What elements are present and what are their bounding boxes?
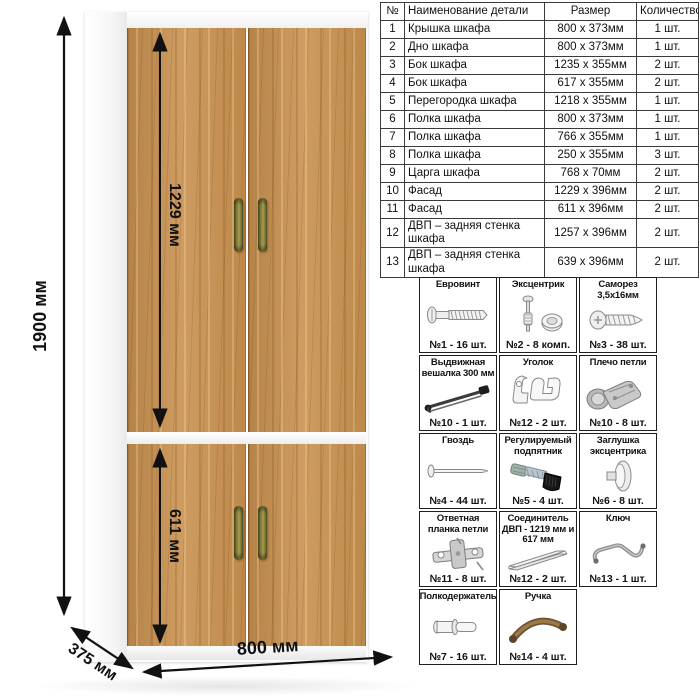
col-header-qty: Количество	[637, 3, 699, 21]
hardware-cell-ugolok: Уголок №12 - 2 шт.	[499, 355, 577, 431]
hardware-count: №4 - 44 шт.	[429, 495, 486, 507]
part-num: 12	[381, 219, 405, 248]
part-num: 4	[381, 75, 405, 93]
parts-table-header-row: № Наименование детали Размер Количество	[381, 3, 699, 21]
part-num: 8	[381, 147, 405, 165]
col-header-size: Размер	[545, 3, 637, 21]
hardware-count: №11 - 8 шт.	[430, 573, 487, 585]
hardware-title: Ручка	[525, 592, 551, 603]
part-qty: 3 шт.	[637, 147, 699, 165]
hardware-title: Плечо петли	[590, 358, 647, 369]
part-num: 5	[381, 93, 405, 111]
part-name: Перегородка шкафа	[405, 93, 545, 111]
part-qty: 2 шт.	[637, 165, 699, 183]
table-row: 4Бок шкафа617 x 355мм2 шт.	[381, 75, 699, 93]
dim-label-depth: 375 мм	[65, 640, 120, 684]
hardware-count: №14 - 4 шт.	[509, 651, 566, 663]
hardware-title: Полкодержатель	[420, 592, 497, 603]
part-num: 10	[381, 183, 405, 201]
hardware-cell-handle: Ручка №14 - 4 шт.	[499, 589, 577, 665]
hardware-cell-empty	[579, 589, 657, 665]
handle-icon	[501, 603, 575, 651]
hardware-title: Ключ	[606, 514, 630, 525]
hardware-title: Ответная планка петли	[421, 514, 495, 535]
hardware-title: Эксцентрик	[512, 280, 565, 291]
table-row: 6Полка шкафа800 x 373мм1 шт.	[381, 111, 699, 129]
part-name: Бок шкафа	[405, 57, 545, 75]
part-size: 617 x 355мм	[545, 75, 637, 93]
hardware-title: Евровинт	[436, 280, 480, 291]
part-num: 11	[381, 201, 405, 219]
hardware-title: Заглушка эксцентрика	[581, 436, 655, 457]
part-name: Фасад	[405, 183, 545, 201]
part-size: 1235 x 355мм	[545, 57, 637, 75]
part-qty: 2 шт.	[637, 183, 699, 201]
hardware-cell-shelf-pin: Полкодержатель №7 - 16 шт.	[419, 589, 497, 665]
col-header-name: Наименование детали	[405, 3, 545, 21]
hardware-cell-eurovint: Евровинт №1 - 16 шт.	[419, 277, 497, 353]
part-size: 611 x 396мм	[545, 201, 637, 219]
dim-label-top-door: 1229 мм	[166, 183, 183, 247]
part-name: Дно шкафа	[405, 39, 545, 57]
hardware-cell-nail: Гвоздь №4 - 44 шт.	[419, 433, 497, 509]
part-qty: 2 шт.	[637, 57, 699, 75]
part-qty: 1 шт.	[637, 21, 699, 39]
corner-bracket-icon	[501, 369, 575, 417]
hardware-grid: Евровинт №1 - 16 шт. Эксцентрик	[419, 277, 657, 665]
table-row: 13ДВП – задняя стенка шкафа639 x 396мм2 …	[381, 248, 699, 277]
part-name: ДВП – задняя стенка шкафа	[405, 219, 545, 248]
part-name: Крышка шкафа	[405, 21, 545, 39]
dim-label-bottom-door: 611 мм	[166, 509, 183, 563]
hardware-cell-key: Ключ №13 - 1 шт.	[579, 511, 657, 587]
part-num: 7	[381, 129, 405, 147]
hardware-count: №3 - 38 шт.	[589, 339, 646, 351]
hardware-cell-hdf-connector: Соединитель ДВП - 1219 мм и 617 мм №12 -…	[499, 511, 577, 587]
part-qty: 1 шт.	[637, 129, 699, 147]
dimension-overlay: 1900 мм 1229 мм 611 мм 800 мм 375 мм	[0, 0, 430, 700]
part-size: 800 x 373мм	[545, 21, 637, 39]
euro-screw-icon	[421, 291, 495, 339]
table-row: 9Царга шкафа768 x 70мм2 шт.	[381, 165, 699, 183]
hardware-count: №10 - 1 шт.	[429, 417, 486, 429]
hinge-plate-icon	[421, 535, 495, 573]
hardware-title: Уголок	[523, 358, 553, 369]
shelf-pin-icon	[421, 603, 495, 651]
hardware-cell-hinge-arm: Плечо петли №10 - 8 шт.	[579, 355, 657, 431]
part-name: Фасад	[405, 201, 545, 219]
part-size: 1218 x 355мм	[545, 93, 637, 111]
part-qty: 2 шт.	[637, 248, 699, 277]
hardware-title: Соединитель ДВП - 1219 мм и 617 мм	[501, 514, 575, 546]
hardware-title: Выдвижная вешалка 300 мм	[421, 358, 495, 379]
hardware-title: Регулируемый подпятник	[501, 436, 575, 457]
hardware-count: №12 - 2 шт.	[509, 417, 566, 429]
pullout-hanger-icon	[421, 379, 495, 417]
part-size: 639 x 396мм	[545, 248, 637, 277]
table-row: 3Бок шкафа1235 x 355мм2 шт.	[381, 57, 699, 75]
part-qty: 2 шт.	[637, 219, 699, 248]
part-size: 766 x 355мм	[545, 129, 637, 147]
table-row: 2Дно шкафа800 x 373мм1 шт.	[381, 39, 699, 57]
hardware-count: №2 - 8 комп.	[506, 339, 570, 351]
table-row: 11Фасад611 x 396мм2 шт.	[381, 201, 699, 219]
part-name: Полка шкафа	[405, 111, 545, 129]
hardware-cell-cam-cap: Заглушка эксцентрика №6 - 8 шт.	[579, 433, 657, 509]
part-size: 768 x 70мм	[545, 165, 637, 183]
parts-table: № Наименование детали Размер Количество …	[380, 2, 699, 278]
cam-cap-icon	[581, 457, 655, 495]
part-size: 1257 x 396мм	[545, 219, 637, 248]
hardware-count: №12 - 2 шт.	[509, 573, 566, 585]
col-header-num: №	[381, 3, 405, 21]
hardware-cell-samorez: Саморез 3,5х16мм №3 - 38 шт.	[579, 277, 657, 353]
hex-key-icon	[581, 525, 655, 573]
hinge-arm-icon	[581, 369, 655, 417]
hardware-count: №10 - 8 шт.	[589, 417, 646, 429]
part-size: 1229 x 396мм	[545, 183, 637, 201]
part-name: ДВП – задняя стенка шкафа	[405, 248, 545, 277]
part-size: 800 x 373мм	[545, 111, 637, 129]
table-row: 1Крышка шкафа800 x 373мм1 шт.	[381, 21, 699, 39]
part-qty: 1 шт.	[637, 93, 699, 111]
part-qty: 2 шт.	[637, 75, 699, 93]
hardware-count: №5 - 4 шт.	[512, 495, 564, 507]
part-name: Бок шкафа	[405, 75, 545, 93]
part-num: 9	[381, 165, 405, 183]
hardware-cell-foot: Регулируемый подпятник №5 - 4 шт.	[499, 433, 577, 509]
hardware-count: №6 - 8 шт.	[592, 495, 644, 507]
part-num: 13	[381, 248, 405, 277]
part-size: 800 x 373мм	[545, 39, 637, 57]
hardware-title: Саморез 3,5х16мм	[581, 280, 655, 301]
hardware-title: Гвоздь	[442, 436, 474, 447]
table-row: 12ДВП – задняя стенка шкафа1257 x 396мм2…	[381, 219, 699, 248]
table-row: 8Полка шкафа250 x 355мм3 шт.	[381, 147, 699, 165]
table-row: 7Полка шкафа766 x 355мм1 шт.	[381, 129, 699, 147]
nail-icon	[421, 447, 495, 495]
part-size: 250 x 355мм	[545, 147, 637, 165]
part-num: 2	[381, 39, 405, 57]
hardware-cell-hanger: Выдвижная вешалка 300 мм №10 - 1 шт.	[419, 355, 497, 431]
part-qty: 1 шт.	[637, 39, 699, 57]
self-tapping-screw-icon	[581, 301, 655, 339]
hardware-cell-eccentric: Эксцентрик №2 - 8 комп.	[499, 277, 577, 353]
hardware-count: №7 - 16 шт.	[429, 651, 486, 663]
hardware-count: №13 - 1 шт.	[589, 573, 646, 585]
part-num: 3	[381, 57, 405, 75]
hardware-cell-hinge-plate: Ответная планка петли №11 - 8 шт.	[419, 511, 497, 587]
part-qty: 1 шт.	[637, 111, 699, 129]
part-name: Полка шкафа	[405, 129, 545, 147]
dim-label-total-height: 1900 мм	[30, 280, 50, 352]
adjustable-foot-icon	[501, 457, 575, 495]
part-name: Полка шкафа	[405, 147, 545, 165]
hardware-count: №1 - 16 шт.	[429, 339, 486, 351]
dim-arrow-width	[144, 657, 391, 672]
table-row: 10Фасад1229 x 396мм2 шт.	[381, 183, 699, 201]
table-row: 5Перегородка шкафа1218 x 355мм1 шт.	[381, 93, 699, 111]
part-qty: 2 шт.	[637, 201, 699, 219]
hdf-connector-icon	[501, 546, 575, 573]
dim-label-width: 800 мм	[236, 635, 299, 659]
part-name: Царга шкафа	[405, 165, 545, 183]
part-num: 6	[381, 111, 405, 129]
eccentric-cam-icon	[501, 291, 575, 339]
part-num: 1	[381, 21, 405, 39]
